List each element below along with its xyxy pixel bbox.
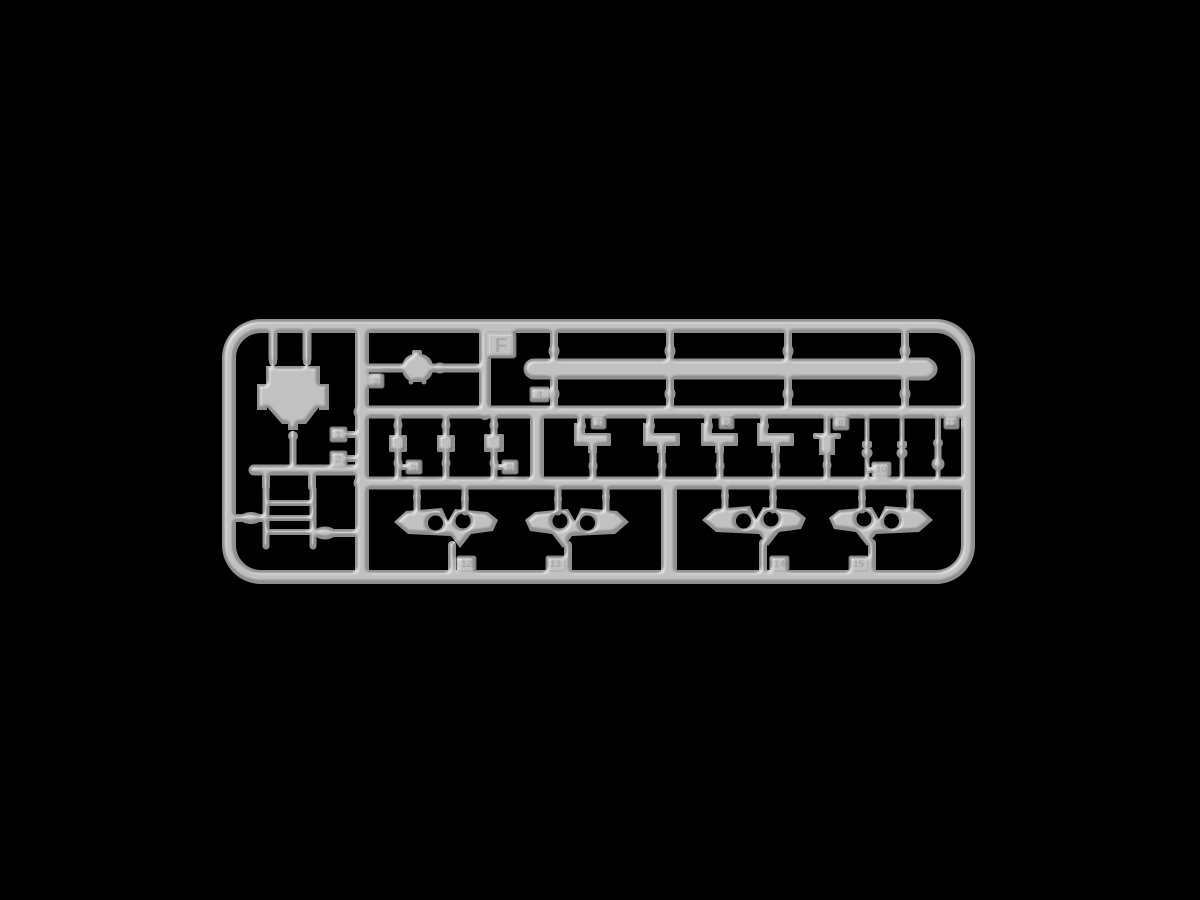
hatch-foot bbox=[409, 380, 414, 385]
pin-foot bbox=[932, 458, 945, 471]
gate-bulge bbox=[783, 387, 794, 401]
gate-bulge bbox=[554, 493, 562, 506]
gate-bulge bbox=[549, 344, 560, 358]
part-knob-2 bbox=[897, 441, 908, 459]
gate-bulge bbox=[413, 491, 421, 504]
gate-bulge bbox=[858, 492, 866, 505]
gate-bulge bbox=[772, 460, 781, 473]
cylinder-body bbox=[819, 439, 835, 455]
gate-tip bbox=[269, 358, 277, 366]
bracket-plate bbox=[574, 433, 611, 446]
turret-ball-joint bbox=[288, 431, 298, 441]
cylinder-flange bbox=[813, 433, 841, 439]
bracket-stub bbox=[588, 445, 597, 453]
turret-neck bbox=[288, 423, 298, 430]
gate-bulge bbox=[769, 492, 777, 505]
turret-side-tab bbox=[257, 384, 267, 410]
part-number-13: 13 bbox=[550, 559, 562, 570]
sprue-render: F 1 2 3 4 5 6 7 8 9 10 11 12 13 14 15 bbox=[0, 0, 1200, 900]
part-number-5: 5 bbox=[411, 463, 417, 474]
bracket-stub bbox=[715, 445, 724, 453]
knob-ball bbox=[862, 448, 873, 459]
bracket-plate bbox=[757, 433, 794, 446]
part-number-9: 9 bbox=[838, 419, 844, 430]
part-number-7: 7 bbox=[596, 419, 602, 430]
gate-bulge bbox=[900, 387, 911, 401]
ladder-rung bbox=[266, 515, 313, 521]
knob-ball bbox=[897, 448, 908, 459]
gate-bulge bbox=[783, 344, 794, 358]
turret-side-tab bbox=[319, 384, 329, 410]
background bbox=[0, 0, 1200, 900]
gate-bulge bbox=[665, 387, 676, 401]
part-number-4: 4 bbox=[537, 390, 543, 401]
gate-bulge bbox=[906, 490, 914, 503]
gate-bulge bbox=[716, 460, 725, 473]
part-number-15: 15 bbox=[853, 559, 865, 570]
part-number-1: 1 bbox=[336, 430, 342, 441]
part-number-8: 8 bbox=[724, 419, 730, 430]
gate-bulge bbox=[721, 490, 729, 503]
bracket-stub bbox=[657, 445, 666, 453]
ladder-rung bbox=[266, 529, 313, 535]
gate-bulge bbox=[589, 460, 598, 473]
gate-bulge bbox=[602, 491, 610, 504]
barrel-breech bbox=[905, 358, 933, 381]
part-number-14: 14 bbox=[774, 559, 786, 570]
ladder-rung bbox=[266, 500, 313, 506]
bracket-plate bbox=[701, 433, 738, 446]
gate-bulge bbox=[823, 459, 832, 471]
part-number-3: 3 bbox=[373, 377, 379, 388]
gate-bulge bbox=[442, 457, 451, 469]
gate-bulge bbox=[314, 527, 336, 540]
part-number-6: 6 bbox=[507, 463, 513, 474]
gate-bulge bbox=[240, 512, 262, 524]
gate-bulge bbox=[665, 344, 676, 358]
gate-bulge bbox=[490, 419, 499, 431]
knob-cap bbox=[897, 441, 907, 448]
gate-bulge bbox=[461, 493, 469, 506]
sprue-letter-label: F bbox=[495, 335, 507, 357]
gate-bulge bbox=[658, 460, 667, 473]
part-number-2: 2 bbox=[336, 455, 342, 466]
knob-cap bbox=[862, 441, 872, 448]
bracket-stub bbox=[771, 445, 780, 453]
bracket-plate bbox=[643, 433, 680, 446]
gate-bulge bbox=[442, 419, 451, 431]
hatch-foot bbox=[422, 380, 427, 385]
part-number-10: 10 bbox=[876, 465, 888, 476]
part-knob-1 bbox=[862, 441, 873, 459]
gate-bulge bbox=[900, 344, 911, 358]
part-number-12: 12 bbox=[461, 559, 473, 570]
part-number-11: 11 bbox=[946, 419, 957, 430]
gate-bulge bbox=[434, 363, 447, 374]
hatch-body bbox=[402, 354, 433, 382]
gate-tip bbox=[303, 358, 311, 366]
gate-bulge bbox=[394, 419, 403, 431]
